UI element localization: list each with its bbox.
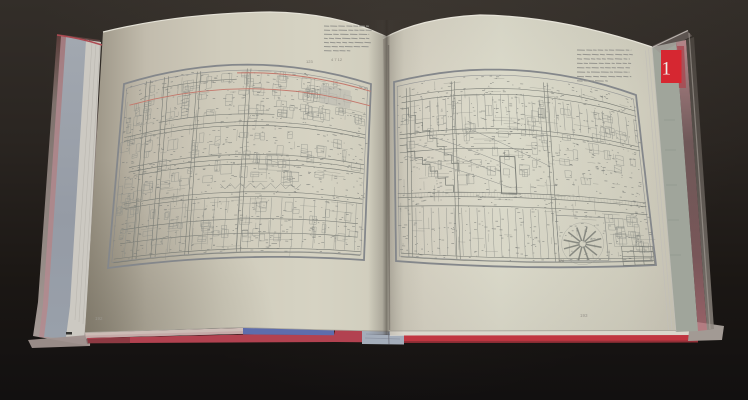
svg-text:1: 1 bbox=[662, 59, 672, 80]
svg-text:124: 124 bbox=[558, 259, 564, 263]
svg-text:193: 193 bbox=[580, 313, 588, 318]
svg-text:192: 192 bbox=[95, 316, 103, 321]
svg-text:123: 123 bbox=[306, 59, 313, 64]
svg-text:4 7 12: 4 7 12 bbox=[331, 57, 343, 62]
